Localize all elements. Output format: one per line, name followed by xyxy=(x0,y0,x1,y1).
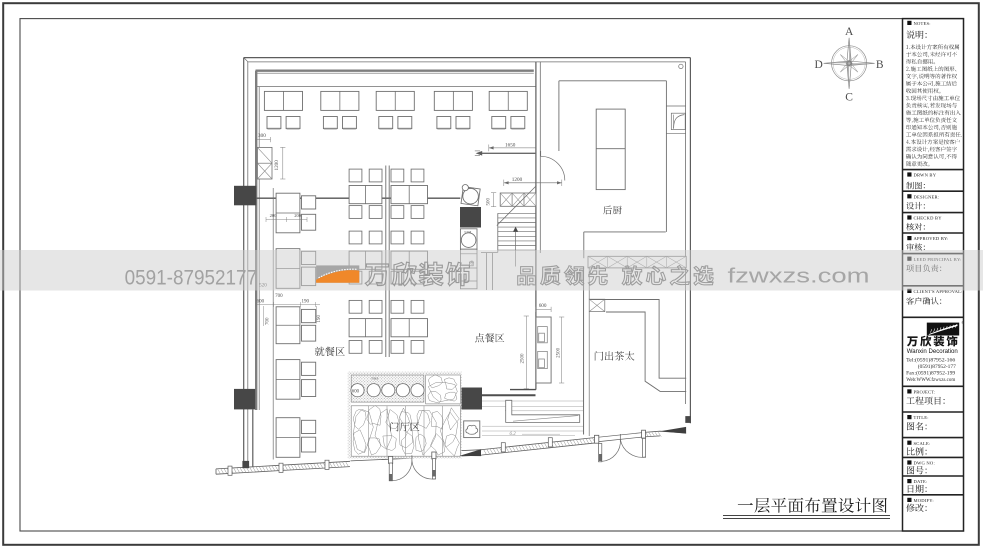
svg-text:1200: 1200 xyxy=(274,160,280,171)
svg-text:1650: 1650 xyxy=(505,142,516,148)
svg-text:DWG NO:: DWG NO: xyxy=(914,461,935,466)
svg-text:2500: 2500 xyxy=(557,347,562,358)
svg-text:PROJECT:: PROJECT: xyxy=(914,390,936,395)
svg-text:NOTES:: NOTES: xyxy=(914,21,931,26)
svg-text:(0591)87952-177: (0591)87952-177 xyxy=(918,363,956,370)
svg-text:2500: 2500 xyxy=(520,353,525,364)
svg-text:DATE:: DATE: xyxy=(914,479,928,484)
svg-text:Fax:(0591)87952-199: Fax:(0591)87952-199 xyxy=(906,370,955,377)
svg-text:DESIGNER:: DESIGNER: xyxy=(914,194,940,199)
svg-text:®: ® xyxy=(470,260,474,267)
svg-text:Web:WWW.fzwxzs.com: Web:WWW.fzwxzs.com xyxy=(906,376,956,383)
svg-text:190: 190 xyxy=(302,299,310,304)
svg-text:APPROVED BY:: APPROVED BY: xyxy=(914,236,949,241)
svg-text:6.2: 6.2 xyxy=(510,432,517,437)
svg-text:600: 600 xyxy=(539,303,547,309)
svg-text:300: 300 xyxy=(258,133,266,139)
svg-text:fzwxzs.com: fzwxzs.com xyxy=(728,266,870,288)
svg-text:B: B xyxy=(876,59,884,71)
svg-text:200: 200 xyxy=(270,213,278,218)
svg-text:D: D xyxy=(814,59,822,71)
svg-text:200: 200 xyxy=(294,213,302,218)
svg-text:Wanxin Decoration: Wanxin Decoration xyxy=(907,348,958,355)
svg-text:700: 700 xyxy=(275,294,283,299)
svg-text:SCALE:: SCALE: xyxy=(914,441,931,446)
svg-text:0591-87952177: 0591-87952177 xyxy=(125,267,258,290)
svg-text:MODIFY:: MODIFY: xyxy=(914,498,934,503)
svg-text:1200: 1200 xyxy=(512,177,523,183)
svg-text:CHECKD BY: CHECKD BY xyxy=(914,216,943,221)
svg-text:600: 600 xyxy=(352,389,360,394)
svg-text:DRWN BY: DRWN BY xyxy=(914,173,937,178)
svg-text:500: 500 xyxy=(486,198,491,206)
svg-text:600: 600 xyxy=(257,299,265,304)
svg-text:190: 190 xyxy=(317,315,322,323)
svg-text:TITLE:: TITLE: xyxy=(914,415,929,420)
svg-text:Tel:(0591)87952-166: Tel:(0591)87952-166 xyxy=(906,356,955,363)
svg-text:C: C xyxy=(845,92,853,104)
svg-text:3.5M: 3.5M xyxy=(464,230,471,234)
svg-text:A: A xyxy=(845,26,854,38)
svg-text:max: max xyxy=(372,375,379,380)
svg-text:700: 700 xyxy=(266,317,271,325)
